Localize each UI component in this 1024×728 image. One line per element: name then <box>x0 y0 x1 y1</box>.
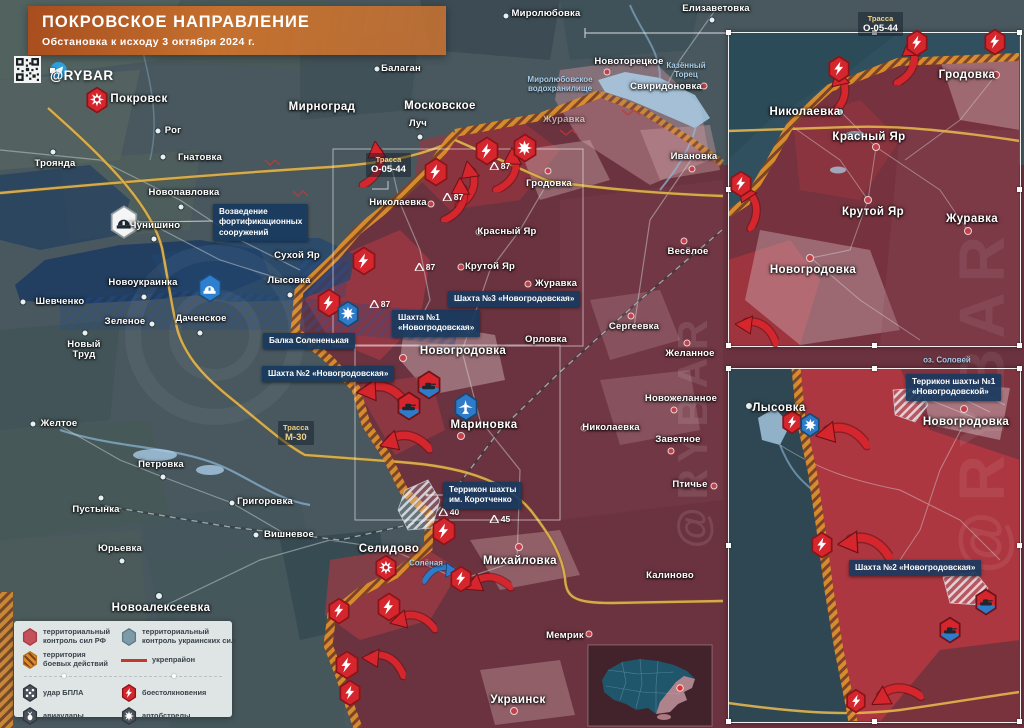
rybar-branding: @RYBAR <box>50 62 67 79</box>
map-title-banner: ПОКРОВСКОЕ НАПРАВЛЕНИЕ Обстановка к исхо… <box>28 6 446 55</box>
legend-item-label: артобстрелы <box>142 712 190 721</box>
frame-handle <box>726 343 731 348</box>
page-subtitle: Обстановка к исходу 3 октября 2024 г. <box>42 36 432 48</box>
frame-handle <box>1017 719 1022 724</box>
frame-handle <box>1017 30 1022 35</box>
legend-item: территориальный контроль украинских сил <box>121 628 224 646</box>
ukraine-minimap-overlay <box>588 645 712 726</box>
legend-grid: территориальный контроль сил РФтерритори… <box>22 628 224 725</box>
frame-handle <box>872 30 877 35</box>
legend-item: укрепрайон <box>121 651 224 669</box>
frame-handle <box>1017 343 1022 348</box>
frame-handle <box>872 366 877 371</box>
inset-frame-top <box>728 32 1021 347</box>
page-title: ПОКРОВСКОЕ НАПРАВЛЕНИЕ <box>42 13 432 32</box>
frame-handle <box>726 719 731 724</box>
legend-item: территориальный контроль сил РФ <box>22 628 121 646</box>
legend-item-label: удар БПЛА <box>43 689 83 698</box>
legend-item: авиаудары <box>22 707 121 725</box>
edge-combat-strip <box>0 592 13 728</box>
map-legend: территориальный контроль сил РФтерритори… <box>14 621 232 717</box>
legend-item-label: территориальный контроль сил РФ <box>43 628 110 645</box>
legend-item-label: территория боевых действий <box>43 651 108 668</box>
qr-code <box>14 56 41 83</box>
legend-item-label: авиаудары <box>43 712 84 721</box>
legend-item-label: боестолкновения <box>142 689 206 698</box>
situation-map: @RYBAR @RYBAR ПОКРОВСКОЕ НАПРАВЛЕНИЕ Обс… <box>0 0 1024 728</box>
inset-frame-bottom <box>728 368 1021 723</box>
frame-handle <box>1017 187 1022 192</box>
frame-handle <box>726 30 731 35</box>
frame-handle <box>872 343 877 348</box>
legend-item: удар БПЛА <box>22 684 121 702</box>
legend-item-label: территориальный контроль украинских сил <box>142 628 236 645</box>
legend-item: артобстрелы <box>121 707 224 725</box>
legend-divider <box>24 676 222 677</box>
frame-handle <box>872 719 877 724</box>
frame-handle <box>726 366 731 371</box>
svg-text:@RYBAR: @RYBAR <box>669 312 716 549</box>
frame-handle <box>726 543 731 548</box>
legend-item-label: укрепрайон <box>152 656 195 665</box>
frame-handle <box>726 187 731 192</box>
legend-item: территория боевых действий <box>22 651 121 669</box>
legend-item: боестолкновения <box>121 684 224 702</box>
frame-handle <box>1017 366 1022 371</box>
frame-handle <box>1017 543 1022 548</box>
rybar-handle: @RYBAR <box>50 68 55 73</box>
